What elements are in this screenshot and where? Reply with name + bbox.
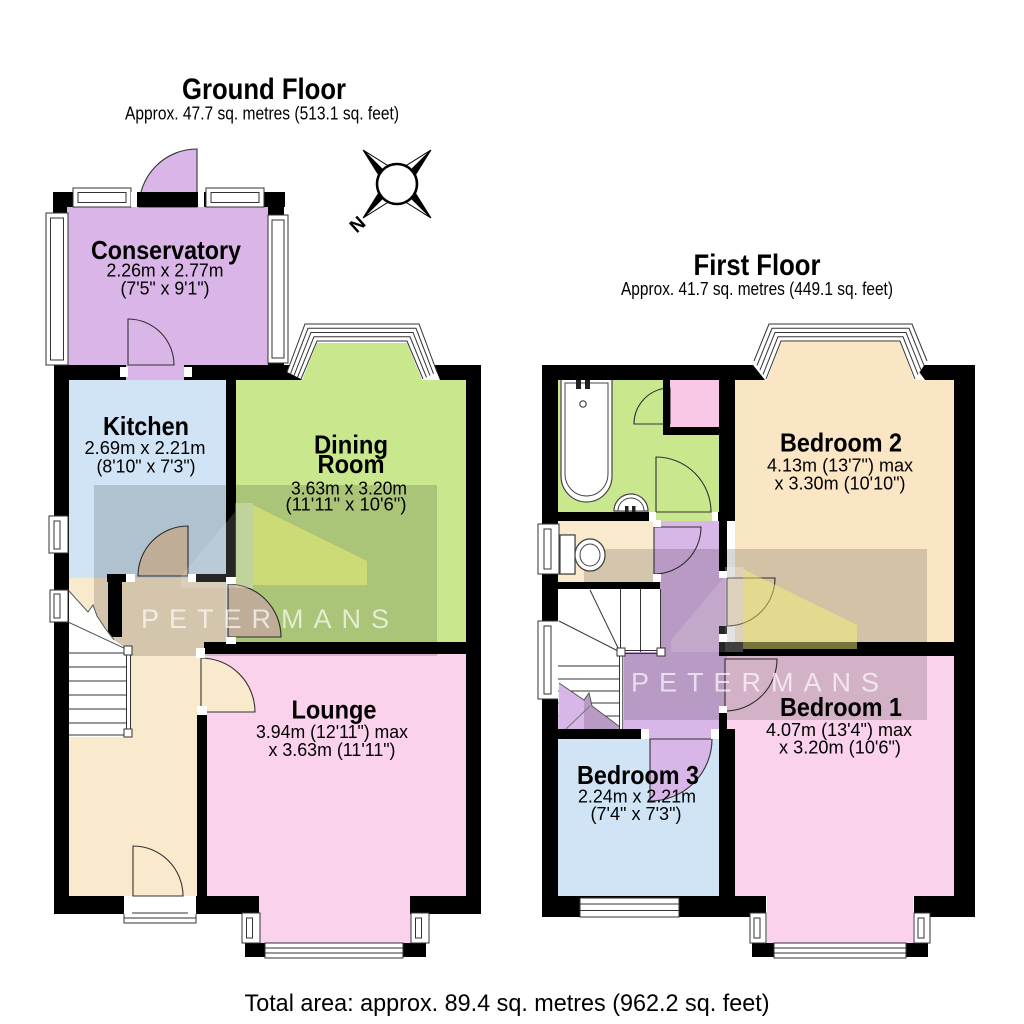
svg-text:First Floor: First Floor [694,249,821,282]
svg-text:2.26m x 2.77m: 2.26m x 2.77m [107,261,224,281]
svg-text:Approx. 41.7 sq. metres (449.1: Approx. 41.7 sq. metres (449.1 sq. feet) [621,279,893,299]
svg-text:Ground Floor: Ground Floor [182,73,346,106]
svg-text:2.69m x 2.21m: 2.69m x 2.21m [85,438,206,458]
svg-text:Bedroom 3: Bedroom 3 [577,760,699,790]
svg-text:x 3.63m (11'11"): x 3.63m (11'11") [269,740,396,760]
svg-text:3.94m (12'11") max: 3.94m (12'11") max [256,722,408,742]
svg-text:Approx. 47.7 sq. metres (513.1: Approx. 47.7 sq. metres (513.1 sq. feet) [125,104,399,124]
svg-text:x 3.20m (10'6"): x 3.20m (10'6") [779,738,901,758]
svg-text:(7'4" x 7'3"): (7'4" x 7'3") [591,804,682,824]
svg-text:PETERMANS: PETERMANS [141,604,399,634]
svg-text:Kitchen: Kitchen [103,411,189,441]
svg-text:Room: Room [318,449,385,479]
svg-text:Total area: approx. 89.4 sq. m: Total area: approx. 89.4 sq. metres (962… [245,990,770,1017]
svg-text:(7'5" x 9'1"): (7'5" x 9'1") [121,279,210,299]
svg-text:(11'11" x 10'6"): (11'11" x 10'6") [286,495,407,515]
svg-text:(8'10" x 7'3"): (8'10" x 7'3") [97,457,196,477]
svg-text:x 3.30m (10'10"): x 3.30m (10'10") [775,474,906,494]
svg-text:Lounge: Lounge [292,695,377,725]
svg-text:Bedroom 1: Bedroom 1 [780,692,902,722]
svg-text:4.13m (13'7") max: 4.13m (13'7") max [767,456,913,476]
svg-text:Bedroom 2: Bedroom 2 [780,428,902,458]
